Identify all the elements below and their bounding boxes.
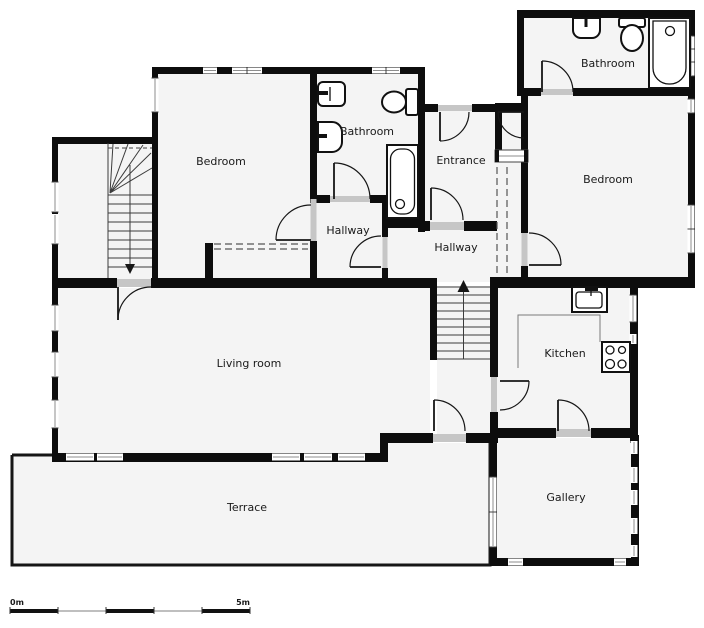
sink-fixture bbox=[317, 82, 345, 106]
bedroom-1-floor bbox=[158, 74, 418, 280]
window bbox=[630, 295, 637, 322]
sink-fixture bbox=[317, 122, 342, 152]
terrace-floor-step bbox=[388, 443, 490, 463]
window bbox=[508, 559, 523, 566]
floor-plan-canvas: Bedroom Bathroom Entrance Bathroom Bedro… bbox=[0, 0, 704, 624]
window bbox=[372, 68, 400, 74]
scale-start-label: 0m bbox=[10, 598, 24, 607]
window bbox=[203, 68, 217, 74]
stairs-landing-floor bbox=[437, 286, 492, 435]
scale-bar: 0m 5m bbox=[10, 598, 250, 614]
gallery-label: Gallery bbox=[546, 491, 586, 504]
window bbox=[490, 477, 497, 547]
window bbox=[495, 150, 528, 162]
window bbox=[631, 518, 638, 534]
window bbox=[152, 78, 159, 112]
window bbox=[631, 441, 638, 454]
window bbox=[52, 400, 59, 428]
bathtub-fixture bbox=[387, 145, 418, 218]
kitchen-sink-fixture bbox=[572, 287, 607, 312]
bathroom-1-label: Bathroom bbox=[340, 125, 394, 138]
window bbox=[66, 454, 94, 461]
bedroom-1-label: Bedroom bbox=[196, 155, 246, 168]
window bbox=[52, 352, 59, 377]
hallway-1-label: Hallway bbox=[326, 224, 370, 237]
window bbox=[232, 68, 262, 74]
window bbox=[52, 214, 59, 244]
window bbox=[631, 490, 638, 505]
bedroom-2-label: Bedroom bbox=[583, 173, 633, 186]
entrance-label: Entrance bbox=[436, 154, 486, 167]
window bbox=[631, 545, 638, 557]
sink-fixture bbox=[573, 18, 600, 38]
hallway-2-label: Hallway bbox=[434, 241, 478, 254]
window bbox=[338, 454, 365, 461]
living-room-label: Living room bbox=[217, 357, 282, 370]
window bbox=[688, 205, 695, 253]
window bbox=[272, 454, 300, 461]
bathtub-fixture bbox=[649, 18, 690, 88]
window bbox=[614, 559, 626, 566]
window bbox=[52, 305, 59, 331]
scale-end-label: 5m bbox=[236, 598, 250, 607]
terrace-label: Terrace bbox=[226, 501, 267, 514]
hallway-2-floor bbox=[386, 226, 527, 282]
bathroom-2-label: Bathroom bbox=[581, 57, 635, 70]
living-room-floor bbox=[58, 288, 430, 455]
kitchen-label: Kitchen bbox=[544, 347, 585, 360]
window bbox=[52, 182, 59, 212]
stove-fixture bbox=[602, 342, 630, 372]
toilet-fixture bbox=[382, 89, 418, 115]
window bbox=[97, 454, 123, 461]
window bbox=[688, 99, 695, 113]
floor-plan: Bedroom Bathroom Entrance Bathroom Bedro… bbox=[0, 0, 704, 624]
window bbox=[631, 467, 638, 483]
window bbox=[304, 454, 332, 461]
toilet-fixture bbox=[619, 18, 645, 51]
